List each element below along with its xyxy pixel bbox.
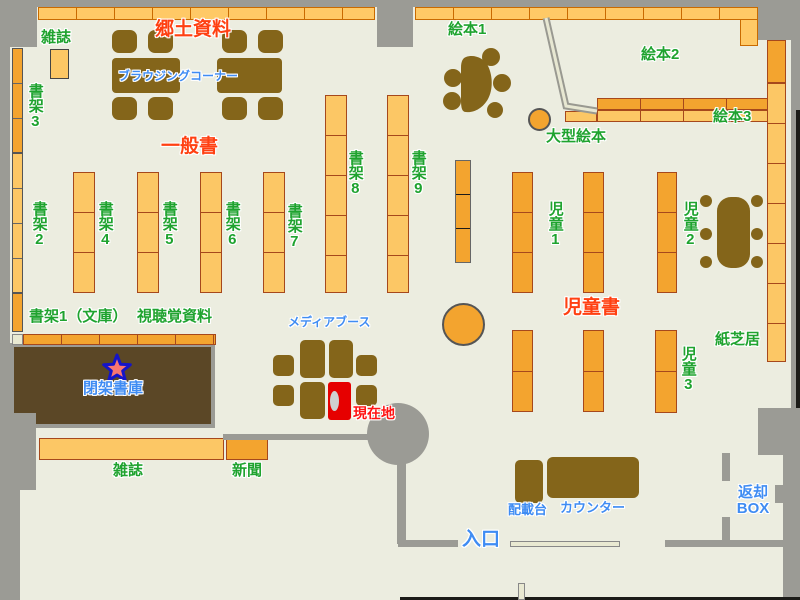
wall-top-right-corner — [758, 0, 800, 40]
chair — [112, 30, 137, 53]
label-jidosho: 児童書 — [563, 298, 620, 318]
shelf-top-row-2 — [415, 7, 760, 20]
shelf-top-row-2-end — [740, 19, 758, 46]
wall-stacks-to-pillar — [223, 434, 369, 440]
stool — [751, 195, 763, 207]
label-ogata-ehon: 大型絵本 — [546, 129, 606, 145]
wall-left-block — [0, 413, 36, 490]
shelf-shoka7 — [263, 172, 285, 293]
chair — [222, 97, 247, 120]
label-ehon1: 絵本1 — [448, 22, 486, 38]
center-circle-table — [442, 303, 485, 346]
shelf-right-column-top — [767, 40, 786, 83]
media-booth — [300, 382, 325, 419]
media-booth — [273, 355, 294, 376]
label-heika-shoko: 閉架書庫 — [83, 381, 143, 397]
label-browsing-corner: ブラウジングコーナー — [118, 70, 238, 83]
label-shoka1-bunko: 書架1（文庫） — [29, 309, 127, 325]
label-iriguchi: 入口 — [462, 530, 500, 550]
shelf-shoka6 — [200, 172, 222, 293]
shelf-left-column-mid — [12, 153, 23, 293]
shelf-jido1-right — [583, 172, 604, 293]
current-location-seat — [330, 391, 339, 411]
shelf-zasshi-top — [50, 49, 69, 79]
label-shichokaku: 視聴覚資料 — [137, 309, 212, 325]
label-kyodo-shiryo: 郷土資料 — [155, 20, 231, 40]
shelf-jido-lower-left — [512, 330, 533, 412]
wall-return-chunk — [758, 408, 784, 455]
label-zasshi-top: 雑誌 — [41, 30, 71, 46]
label-jido3: 児童3 — [680, 346, 696, 393]
stool — [700, 195, 712, 207]
label-jido1: 児童1 — [547, 201, 563, 248]
label-shoka2: 書架2 — [31, 201, 47, 248]
label-shimbun: 新聞 — [232, 463, 262, 479]
library-floor-map: 雑誌 書架3 郷土資料 ブラウジングコーナー 一般書 書架2 書架4 書架5 書… — [0, 0, 800, 600]
label-shoka9: 書架9 — [410, 150, 426, 197]
wall-right-lower — [783, 408, 800, 600]
shelf-jido1-left — [512, 172, 533, 293]
stool — [482, 48, 500, 66]
stool — [700, 228, 712, 240]
label-henkyaku-box: 返却 BOX — [728, 485, 778, 517]
diagonal-partition — [546, 18, 597, 111]
shelf-right-column — [767, 83, 786, 362]
label-shoka5: 書架5 — [161, 201, 177, 248]
diagonal-partition-inner — [546, 18, 597, 111]
media-booth — [356, 385, 377, 406]
label-media-booth: メディアブース — [288, 316, 371, 329]
shelf-jido3 — [655, 330, 677, 413]
label-ehon2: 絵本2 — [641, 47, 679, 63]
wall-entrance-left — [398, 540, 458, 547]
shelf-jido-lower-right — [583, 330, 604, 412]
shelf-right-row-ext — [565, 111, 597, 122]
lower-door — [518, 583, 525, 600]
wall-bottom-right — [665, 540, 795, 547]
label-genzaichi: 現在地 — [353, 406, 395, 421]
chair — [148, 97, 173, 120]
stool — [493, 74, 511, 92]
stool — [751, 256, 763, 268]
stool — [700, 256, 712, 268]
chair — [258, 97, 283, 120]
stool — [751, 228, 763, 240]
stool — [444, 69, 462, 87]
shelf-left-column-upper — [12, 48, 23, 153]
shelf-left-column-lower — [12, 293, 23, 332]
pillar-top — [377, 0, 413, 47]
wall-left-lower — [0, 490, 20, 600]
entrance-door — [510, 541, 620, 547]
wall-return-upper — [722, 453, 730, 481]
label-kamishibai: 紙芝居 — [715, 332, 760, 348]
label-shoka8: 書架8 — [347, 150, 363, 197]
media-booth — [329, 340, 353, 378]
label-ippansho: 一般書 — [161, 137, 218, 157]
label-ehon3: 絵本3 — [713, 109, 751, 125]
label-shoka3: 書架3 — [27, 83, 43, 130]
kids-table — [717, 197, 750, 268]
label-henkyaku-line1: 返却 — [738, 484, 768, 501]
shelf-stacks-top-row — [23, 334, 216, 345]
media-booth — [273, 385, 294, 406]
counter-desk — [547, 457, 639, 498]
label-shoka4: 書架4 — [97, 201, 113, 248]
label-henkyaku-line2: BOX — [737, 500, 770, 517]
label-zasshi-bottom: 雑誌 — [113, 463, 143, 479]
media-booth — [356, 355, 377, 376]
label-shoka6: 書架6 — [224, 201, 240, 248]
wall-right-black-edge — [796, 110, 800, 440]
shelf-center-short — [455, 160, 471, 263]
stool — [443, 92, 461, 110]
label-counter: カウンター — [560, 501, 625, 515]
label-shoka7: 書架7 — [286, 203, 302, 250]
shelf-jido2 — [657, 172, 677, 293]
wall-left — [0, 7, 10, 413]
chair — [112, 97, 137, 120]
shelf-stacks-top-end — [12, 334, 23, 345]
shelf-shimbun — [226, 438, 268, 460]
shelf-shoka9 — [387, 95, 409, 293]
pillar-stem — [397, 460, 406, 544]
label-haisaidai: 配載台 — [508, 503, 547, 517]
chair — [258, 30, 283, 53]
shelf-shoka8 — [325, 95, 347, 293]
shelf-shoka5 — [137, 172, 159, 293]
shelf-shoka4 — [73, 172, 95, 293]
shelf-zasshi-bottom — [39, 438, 224, 460]
label-jido2: 児童2 — [682, 201, 698, 248]
haisaidai-desk — [515, 460, 543, 503]
media-booth — [300, 340, 325, 378]
stool — [487, 102, 503, 118]
